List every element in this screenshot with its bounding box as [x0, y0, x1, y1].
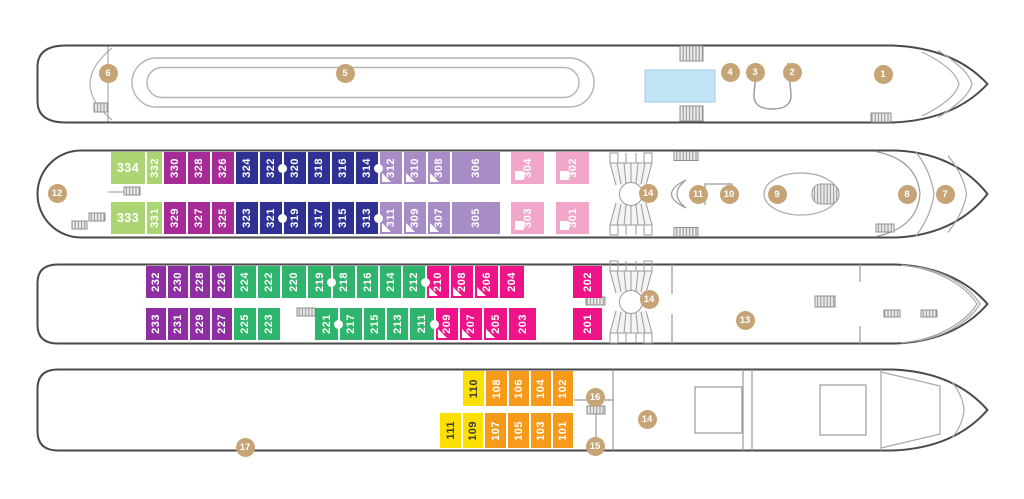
triangle-icon [430, 173, 439, 182]
cabin-214[interactable]: 214 [380, 266, 402, 298]
cabin-204[interactable]: 204 [500, 266, 525, 298]
cabin-318[interactable]: 318 [308, 152, 331, 184]
cabin-number: 320 [289, 158, 301, 178]
legend-marker-6: 6 [99, 64, 118, 83]
cabin-307[interactable]: 307 [428, 202, 451, 234]
cabin-309[interactable]: 309 [404, 202, 427, 234]
triangle-icon [453, 287, 462, 296]
legend-marker-1: 1 [874, 65, 893, 84]
cabin-number: 111 [445, 421, 457, 440]
triangle-icon [406, 223, 415, 232]
cabin-number: 322 [265, 158, 277, 178]
triangle-icon [477, 287, 486, 296]
cabin-215[interactable]: 215 [364, 308, 386, 340]
cabin-326[interactable]: 326 [212, 152, 235, 184]
connecting-door-divider [331, 266, 333, 298]
cabin-202[interactable]: 202 [573, 266, 603, 298]
cabin-206[interactable]: 206 [475, 266, 499, 298]
cabin-number: 326 [217, 158, 229, 178]
cabin-number: 225 [239, 314, 251, 334]
cabin-231[interactable]: 231 [168, 308, 189, 340]
cabin-number: 329 [169, 208, 181, 228]
cabin-number: 215 [369, 314, 381, 334]
legend-marker-14: 14 [640, 290, 659, 309]
cabin-number: 204 [506, 272, 518, 292]
triangle-icon [406, 173, 415, 182]
cabin-226[interactable]: 226 [212, 266, 233, 298]
square-icon [515, 171, 524, 180]
cabin-218[interactable]: 218 [333, 266, 356, 298]
cabin-227[interactable]: 227 [212, 308, 233, 340]
legend-marker-4: 4 [721, 63, 740, 82]
cabin-205[interactable]: 205 [484, 308, 508, 340]
cabin-225[interactable]: 225 [234, 308, 257, 340]
legend-marker-16: 16 [586, 388, 605, 407]
cabin-228[interactable]: 228 [190, 266, 211, 298]
cabin-106[interactable]: 106 [509, 371, 530, 406]
triangle-icon [429, 287, 438, 296]
triangle-icon [462, 329, 471, 338]
cabin-330[interactable]: 330 [164, 152, 187, 184]
cabin-number: 106 [513, 379, 525, 399]
cabin-number: 107 [490, 421, 502, 441]
cabin-216[interactable]: 216 [357, 266, 379, 298]
cabin-number: 228 [194, 272, 206, 292]
cabin-number: 321 [265, 208, 277, 228]
cabin-217[interactable]: 217 [340, 308, 363, 340]
cabin-number: 216 [362, 272, 374, 292]
cabin-306[interactable]: 306 [452, 152, 501, 184]
cabin-224[interactable]: 224 [234, 266, 257, 298]
cabin-108[interactable]: 108 [486, 371, 508, 406]
cabin-105[interactable]: 105 [508, 413, 530, 448]
legend-marker-14: 14 [638, 410, 657, 429]
cabin-number: 226 [216, 272, 228, 292]
connecting-door-divider [378, 202, 380, 234]
cabins-and-markers-layer: 1234563343323303283263243223203183163143… [0, 0, 1024, 499]
cabin-229[interactable]: 229 [190, 308, 211, 340]
cabin-317[interactable]: 317 [308, 202, 331, 234]
connecting-door-dot [374, 164, 383, 173]
cabin-308[interactable]: 308 [428, 152, 451, 184]
cabin-number: 330 [169, 158, 181, 178]
legend-marker-14: 14 [639, 184, 658, 203]
cabin-number: 332 [149, 158, 161, 178]
legend-marker-2: 2 [783, 63, 802, 82]
cabin-number: 103 [535, 421, 547, 441]
cabin-327[interactable]: 327 [188, 202, 211, 234]
cabin-107[interactable]: 107 [485, 413, 507, 448]
triangle-icon [382, 223, 391, 232]
square-icon [515, 221, 524, 230]
cabin-332[interactable]: 332 [147, 152, 163, 184]
cabin-230[interactable]: 230 [168, 266, 189, 298]
cabin-number: 203 [517, 314, 529, 334]
triangle-icon [382, 173, 391, 182]
cabin-110[interactable]: 110 [463, 371, 485, 406]
connecting-door-dot [278, 214, 287, 223]
cabin-223[interactable]: 223 [258, 308, 281, 340]
cabin-329[interactable]: 329 [164, 202, 187, 234]
cabin-number: 314 [361, 158, 373, 178]
connecting-door-divider [378, 152, 380, 184]
cabin-325[interactable]: 325 [212, 202, 235, 234]
cabin-301[interactable]: 301 [556, 202, 590, 234]
cabin-109[interactable]: 109 [463, 413, 484, 448]
cabin-number: 231 [172, 314, 184, 334]
triangle-icon [430, 223, 439, 232]
cabin-111[interactable]: 111 [440, 413, 462, 448]
cabin-201[interactable]: 201 [573, 308, 603, 340]
cabin-number: 211 [416, 314, 428, 333]
cabin-333[interactable]: 333 [111, 202, 146, 234]
triangle-icon [438, 329, 447, 338]
cabin-104[interactable]: 104 [531, 371, 552, 406]
cabin-number: 327 [193, 208, 205, 228]
cabin-number: 218 [338, 272, 350, 292]
cabin-number: 333 [117, 211, 139, 225]
cabin-number: 230 [172, 272, 184, 292]
cabin-number: 221 [321, 314, 333, 334]
cabin-220[interactable]: 220 [282, 266, 307, 298]
cabin-316[interactable]: 316 [332, 152, 355, 184]
cabin-number: 223 [263, 314, 275, 334]
cabin-number: 328 [193, 158, 205, 178]
connecting-door-dot [278, 164, 287, 173]
cabin-103[interactable]: 103 [531, 413, 552, 448]
cabin-number: 229 [194, 314, 206, 334]
cabin-319[interactable]: 319 [284, 202, 307, 234]
cabin-320[interactable]: 320 [284, 152, 307, 184]
legend-marker-17: 17 [236, 438, 255, 457]
cabin-number: 315 [337, 208, 349, 228]
cabin-203[interactable]: 203 [509, 308, 537, 340]
triangle-icon [486, 329, 495, 338]
connecting-door-dot [374, 214, 383, 223]
legend-marker-12: 12 [48, 184, 67, 203]
legend-marker-11: 11 [689, 185, 708, 204]
square-icon [560, 221, 569, 230]
cabin-number: 104 [535, 379, 547, 399]
cabin-324[interactable]: 324 [236, 152, 259, 184]
legend-marker-3: 3 [746, 63, 765, 82]
cabin-number: 222 [263, 272, 275, 292]
cabin-302[interactable]: 302 [556, 152, 590, 184]
cabin-334[interactable]: 334 [111, 152, 146, 184]
cabin-304[interactable]: 304 [511, 152, 545, 184]
cabin-number: 331 [149, 208, 161, 228]
cabin-number: 324 [241, 158, 253, 178]
cabin-number: 224 [239, 272, 251, 292]
connecting-door-dot [327, 278, 336, 287]
cabin-315[interactable]: 315 [332, 202, 355, 234]
cabin-102[interactable]: 102 [553, 371, 574, 406]
legend-marker-13: 13 [736, 311, 755, 330]
cabin-number: 334 [117, 161, 139, 175]
cabin-213[interactable]: 213 [387, 308, 409, 340]
cabin-number: 233 [150, 314, 162, 334]
square-icon [560, 171, 569, 180]
cabin-number: 317 [313, 208, 325, 228]
cabin-207[interactable]: 207 [460, 308, 483, 340]
cabin-number: 219 [314, 272, 326, 292]
deck-plan: 1234563343323303283263243223203183163143… [0, 0, 1024, 499]
cabin-331[interactable]: 331 [147, 202, 163, 234]
connecting-door-divider [425, 266, 427, 298]
cabin-210[interactable]: 210 [427, 266, 450, 298]
cabin-number: 201 [582, 314, 594, 334]
connecting-door-divider [338, 308, 340, 340]
cabin-number: 313 [361, 208, 373, 228]
cabin-number: 220 [288, 272, 300, 292]
connecting-door-dot [421, 278, 430, 287]
cabin-number: 105 [513, 421, 525, 441]
cabin-311[interactable]: 311 [380, 202, 403, 234]
cabin-208[interactable]: 208 [451, 266, 474, 298]
cabin-209[interactable]: 209 [436, 308, 459, 340]
connecting-door-divider [282, 202, 284, 234]
cabin-222[interactable]: 222 [258, 266, 281, 298]
cabin-232[interactable]: 232 [146, 266, 167, 298]
connecting-door-dot [430, 320, 439, 329]
cabin-303[interactable]: 303 [511, 202, 545, 234]
cabin-323[interactable]: 323 [236, 202, 259, 234]
cabin-328[interactable]: 328 [188, 152, 211, 184]
connecting-door-divider [434, 308, 436, 340]
cabin-number: 101 [557, 421, 569, 441]
cabin-number: 319 [289, 208, 301, 228]
legend-marker-15: 15 [586, 437, 605, 456]
cabin-101[interactable]: 101 [553, 413, 574, 448]
cabin-number: 110 [468, 379, 480, 398]
legend-marker-8: 8 [898, 185, 917, 204]
cabin-number: 214 [385, 272, 397, 292]
cabin-233[interactable]: 233 [146, 308, 167, 340]
cabin-number: 108 [491, 379, 503, 399]
cabin-310[interactable]: 310 [404, 152, 427, 184]
connecting-door-divider [282, 152, 284, 184]
cabin-number: 325 [217, 208, 229, 228]
cabin-number: 213 [392, 314, 404, 334]
legend-marker-10: 10 [720, 185, 739, 204]
cabin-number: 212 [408, 272, 420, 292]
connecting-door-dot [334, 320, 343, 329]
cabin-number: 306 [470, 158, 482, 178]
cabin-number: 102 [557, 379, 569, 399]
cabin-number: 217 [345, 314, 357, 334]
legend-marker-9: 9 [768, 185, 787, 204]
cabin-number: 316 [337, 158, 349, 178]
cabin-number: 109 [467, 421, 479, 441]
cabin-number: 305 [470, 208, 482, 228]
cabin-305[interactable]: 305 [452, 202, 501, 234]
legend-marker-7: 7 [936, 185, 955, 204]
cabin-number: 202 [582, 272, 594, 292]
legend-marker-5: 5 [336, 64, 355, 83]
cabin-number: 323 [241, 208, 253, 228]
cabin-number: 318 [313, 158, 325, 178]
cabin-number: 232 [150, 272, 162, 292]
cabin-number: 227 [216, 314, 228, 334]
cabin-312[interactable]: 312 [380, 152, 403, 184]
